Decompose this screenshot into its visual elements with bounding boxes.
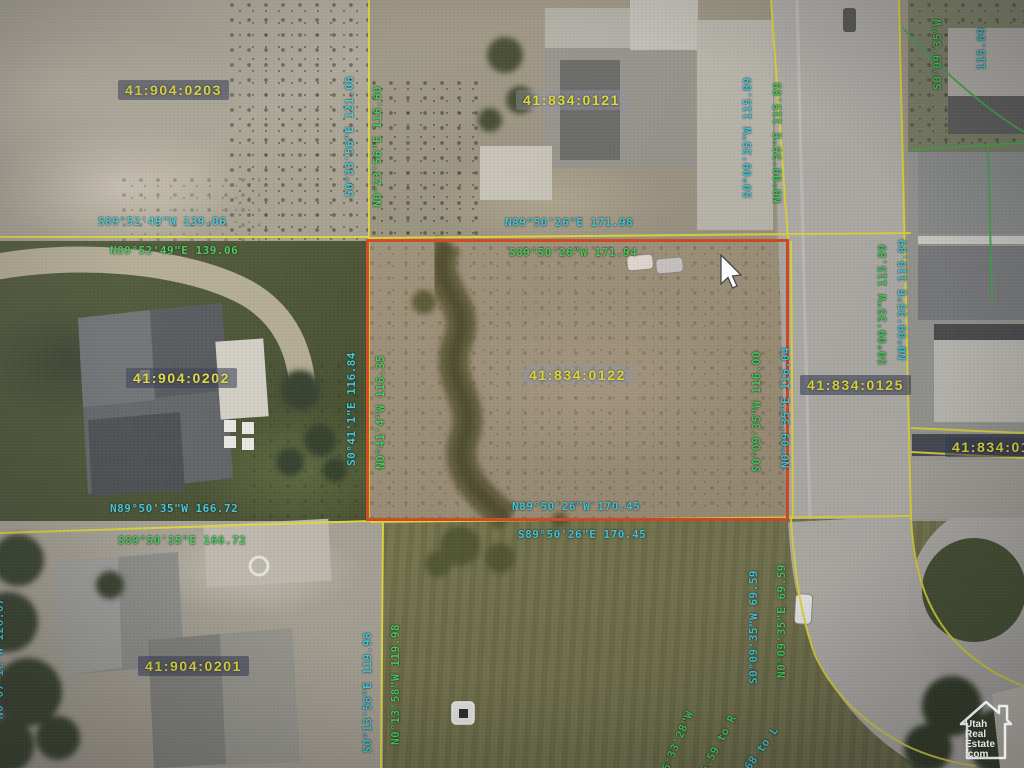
bearing-label: N89°50'26"E 171.98	[505, 216, 633, 229]
parcel-label-0202[interactable]: 41:904:0202	[126, 368, 237, 388]
bearing-label: S0°09'35"W 115.89	[877, 210, 888, 365]
bearing-label: N0°09'35"E 115.89	[897, 205, 908, 360]
parcel-label-0203[interactable]: 41:904:0203	[118, 80, 229, 100]
bearing-label: N89°50'26"W 170.45	[512, 500, 640, 513]
tree-texture	[120, 175, 260, 241]
parcel-label-0201[interactable]: 41:904:0201	[138, 656, 249, 676]
bearing-label: S0°09'35"W	[932, 0, 943, 90]
bearing-label: 115.89	[976, 4, 987, 70]
aerial-region-topmiddle	[370, 0, 776, 243]
aerial-region-rightmiddle	[908, 152, 1024, 438]
bearing-label: N89°50'35"W 166.72	[110, 502, 238, 515]
bearing-label: S0°33'56"E 121.06	[344, 25, 355, 197]
map-canvas[interactable]: 41:904:0203 41:834:0121 41:904:0202 41:8…	[0, 0, 1024, 768]
bearing-label: S89°50'26"W 171.94	[509, 246, 637, 259]
bearing-label: N0°23'56"E 116.60	[372, 42, 383, 207]
bearing-label: S0°09'35"W 115.89	[742, 18, 753, 198]
parcel-label-0122[interactable]: 41:834:0122	[522, 365, 633, 385]
bearing-label: N0°09'35"E 69.59	[776, 548, 787, 678]
aerial-region-bottomleft	[0, 521, 383, 768]
bearing-label: N0°41'4"W 116.35	[375, 304, 386, 469]
aerial-region-topright	[908, 0, 1024, 152]
tree-texture	[370, 78, 482, 243]
bearing-label: S89°50'35"E 166.72	[118, 534, 246, 547]
bearing-label: S89°50'26"E 170.45	[518, 528, 646, 541]
bearing-label: N0°09'35"E 116.04	[780, 300, 791, 468]
bearing-label: S0°09'35"W 116.00	[751, 304, 762, 472]
bearing-label: S0°09'35"W 69.59	[748, 552, 759, 684]
bearing-label: N0°09'35"E 115.89	[772, 28, 783, 203]
mouse-cursor-icon	[720, 254, 746, 292]
bearing-label: N0°07'16"W 126.67	[0, 554, 5, 719]
parcel-label-012x[interactable]: 41:834:012	[945, 437, 1024, 457]
parcel-label-0125[interactable]: 41:834:0125	[800, 375, 911, 395]
utahrealestate-watermark: Utah Real Estate .com	[951, 694, 1021, 766]
aerial-region-field	[383, 519, 1024, 768]
bearing-label: S89°52'49"W 139.06	[98, 215, 226, 228]
watermark-line: .com	[965, 750, 995, 760]
parcel-label-0121[interactable]: 41:834:0121	[516, 90, 627, 110]
bearing-label: S0°41'1"E 116.84	[346, 296, 357, 466]
bearing-label: N0°13'58"W 119.98	[390, 580, 401, 745]
bearing-label: S0°13'58"E 119.98	[362, 588, 373, 753]
bearing-label: N89°52'49"E 139.06	[110, 244, 238, 257]
tree-texture	[908, 0, 1024, 152]
aerial-region-topleft	[0, 0, 370, 241]
